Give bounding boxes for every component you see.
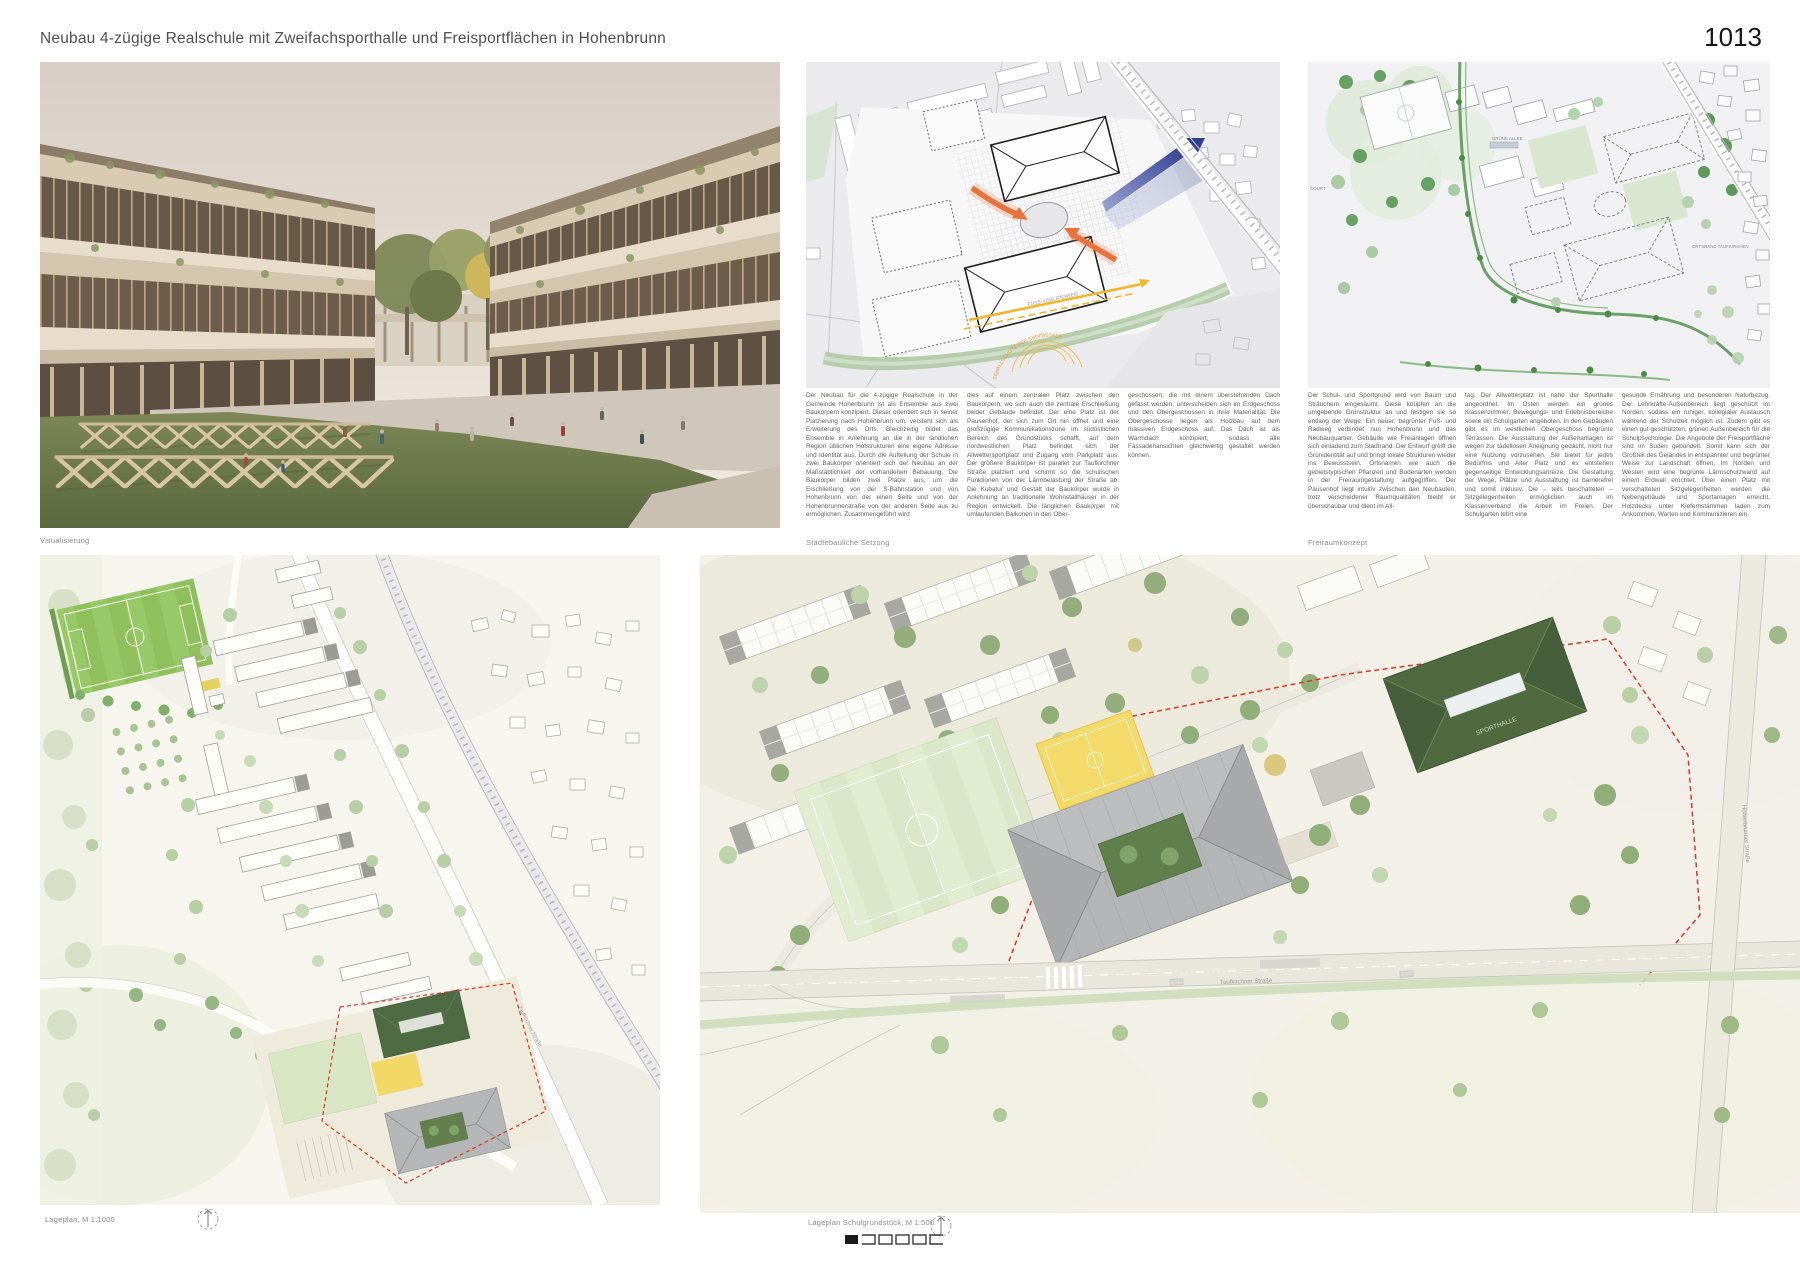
siteplan-detail-caption: Lageplan Schulgrundstück, M 1:500 (808, 1218, 934, 1227)
siteplan-overview-caption: Lageplan, M 1:1000 (45, 1215, 115, 1224)
urban-text-col-1: Der Neubau für die 4-zügige Realschule i… (806, 392, 958, 540)
urban-text-block: Der Neubau für die 4-zügige Realschule i… (806, 392, 1280, 540)
visualization-caption: Visualisierung (40, 536, 89, 545)
court-label: COURT (1310, 186, 1326, 191)
landscape-text-col-1: Der Schul- und Sportgrund wird von Baum … (1308, 392, 1456, 540)
ortsrand-label: ORTSRAND TAUFKIRCHEN (1692, 244, 1749, 249)
landscape-text-block: Der Schul- und Sportgrund wird von Baum … (1308, 392, 1770, 540)
presentation-sheet: Neubau 4-zügige Realschule mit Zweifachs… (0, 0, 1800, 1272)
scale-bar (845, 1232, 945, 1248)
sheet-number: 1013 (1704, 22, 1762, 53)
urban-text-col-3: geschossen, die mit einem überstehenden … (1128, 392, 1280, 540)
urban-text-col-2: dies auf einem zentralen Platz zwischen … (967, 392, 1119, 540)
allee-label: GRÜNE ALLEE (1492, 136, 1523, 141)
landscape-text-col-2: tag. Der Allwetterplatz ist nahe der Spo… (1465, 392, 1613, 540)
urban-diagram-caption: Städtebauliche Setzung (806, 538, 890, 547)
urban-concept-diagram: FUSS- UND RADWEG SCHALLSCHUTZ DER SÜDFAS… (806, 62, 1280, 388)
siteplan-detail: SPORTHALLE (700, 555, 1800, 1213)
visualization-rendering (40, 62, 780, 528)
station-platform (1490, 142, 1518, 148)
landscape-concept-diagram: GRÜNE ALLEE (1308, 62, 1770, 388)
landscape-diagram-caption: Freiraumkonzept (1308, 538, 1367, 547)
siteplan-overview: Taufkirchner Straße (40, 555, 660, 1205)
landscape-text-col-3: gesunde Ernährung und besonderen Naturbe… (1622, 392, 1770, 540)
page-title: Neubau 4-zügige Realschule mit Zweifachs… (40, 30, 666, 48)
north-arrow-icon (195, 1206, 221, 1232)
